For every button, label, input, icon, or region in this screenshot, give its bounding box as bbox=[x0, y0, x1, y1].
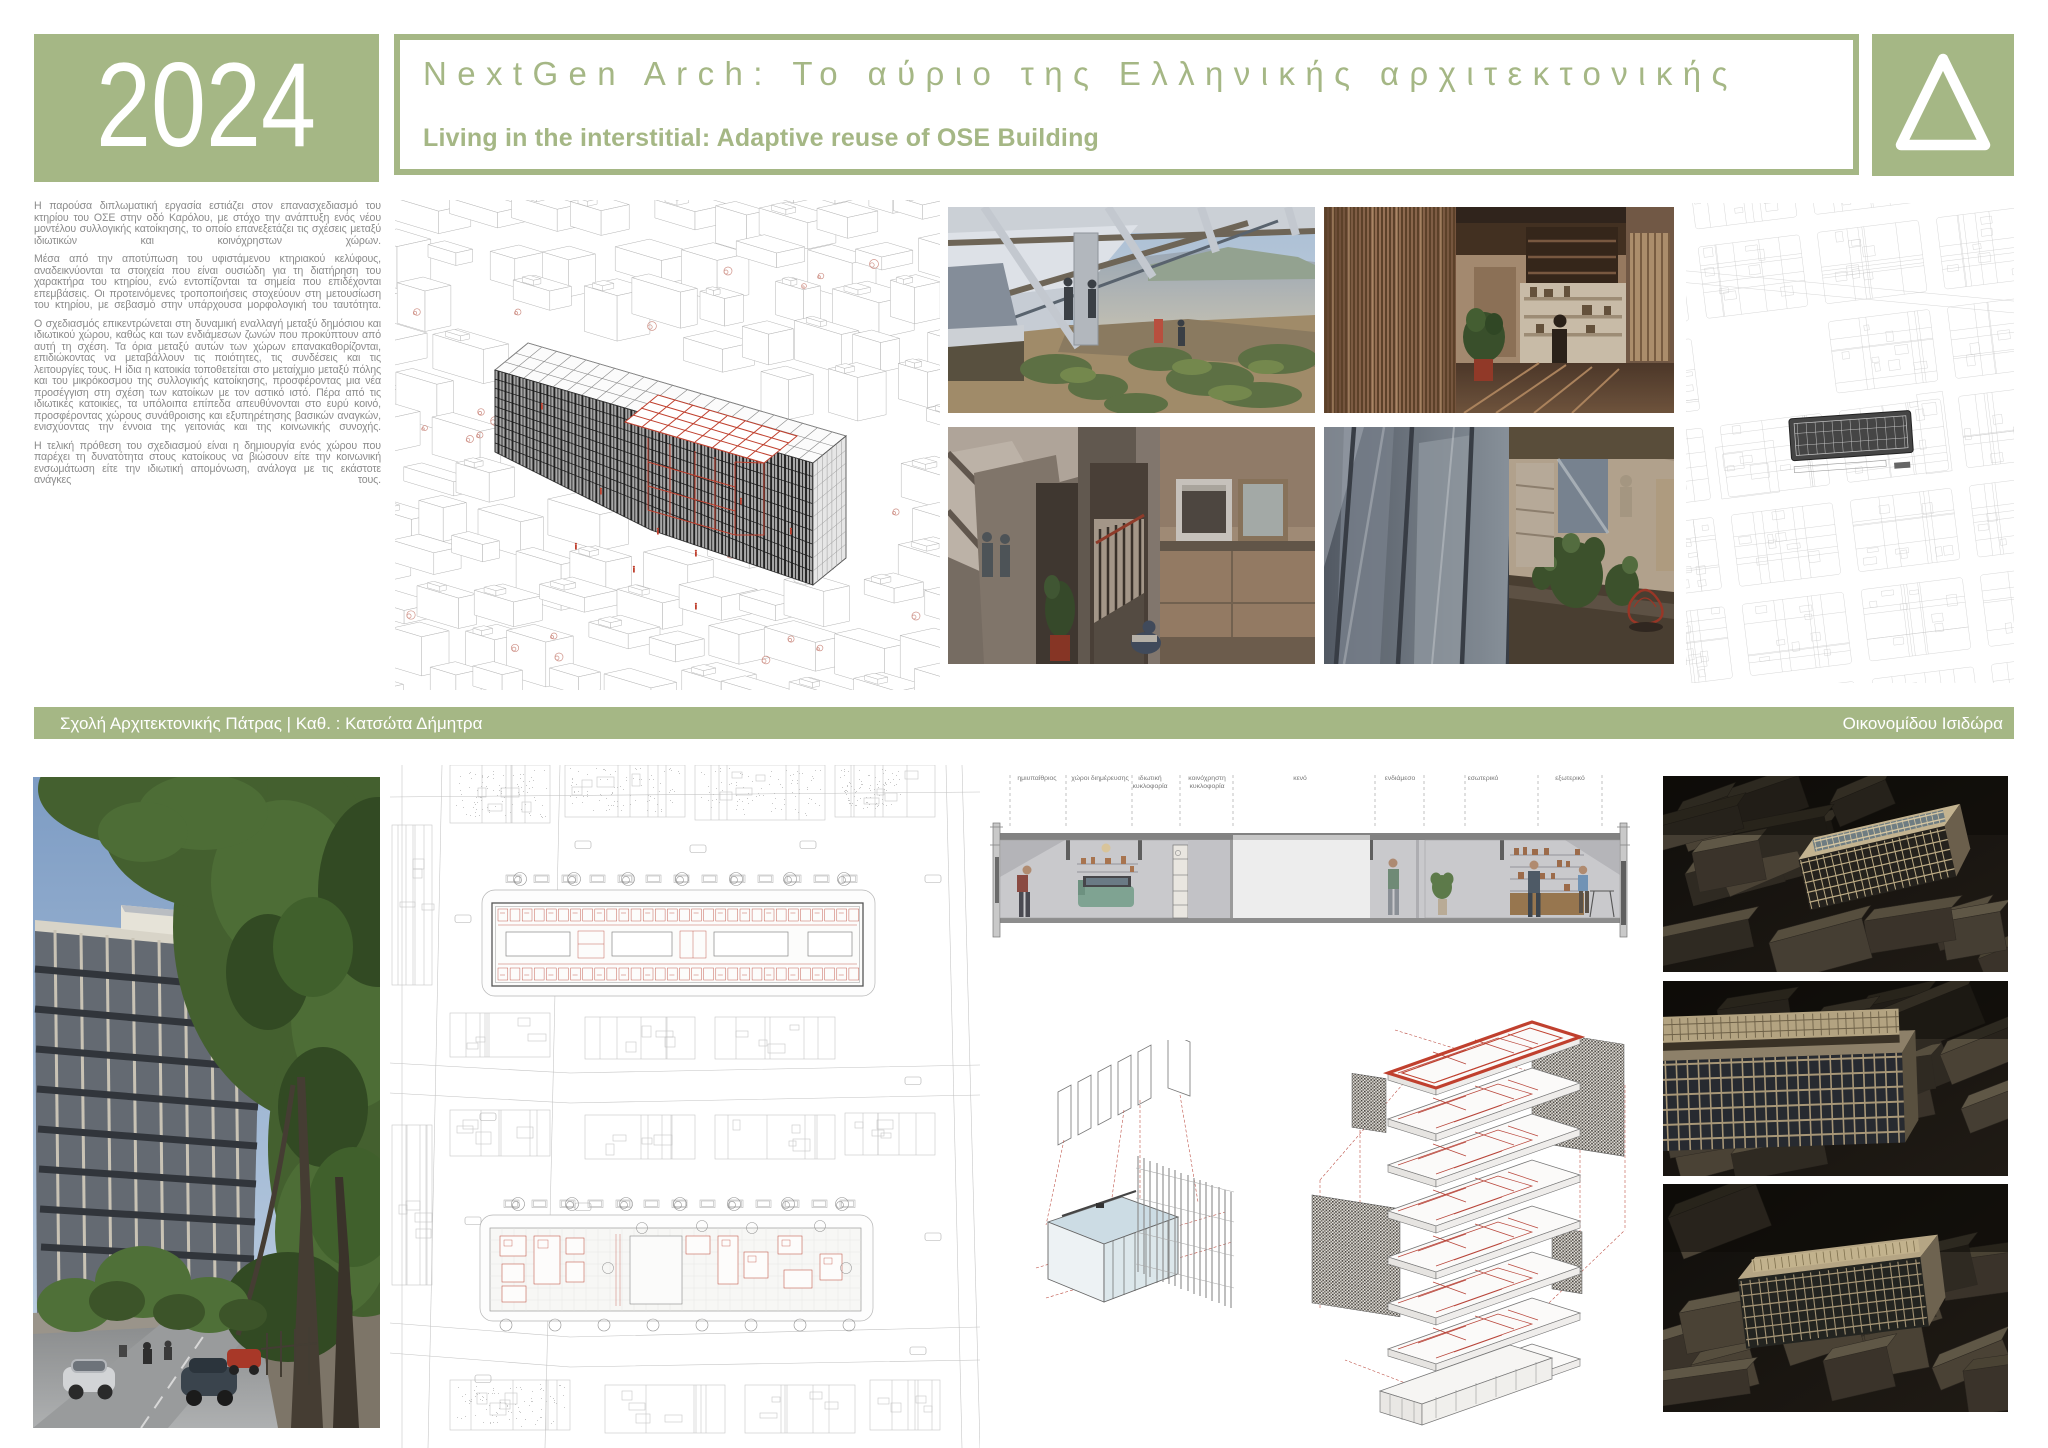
svg-text:κυκλοφορία: κυκλοφορία bbox=[1132, 782, 1167, 790]
svg-text:κυκλοφορία: κυκλοφορία bbox=[1189, 782, 1224, 790]
svg-text:2024: 2024 bbox=[96, 38, 316, 172]
svg-text:εσωτερικό: εσωτερικό bbox=[1468, 774, 1499, 782]
svg-text:χώροι διημέρευσης: χώροι διημέρευσης bbox=[1071, 774, 1129, 782]
svg-text:κενό: κενό bbox=[1293, 774, 1307, 782]
svg-text:εξωτερικό: εξωτερικό bbox=[1555, 774, 1585, 782]
svg-text:κοινόχρηστη: κοινόχρηστη bbox=[1188, 774, 1226, 782]
svg-text:ιδιωτική: ιδιωτική bbox=[1138, 775, 1162, 782]
svg-text:ημιυπαίθριος: ημιυπαίθριος bbox=[1017, 774, 1057, 782]
svg-text:ενδιάμεσο: ενδιάμεσο bbox=[1385, 774, 1416, 782]
